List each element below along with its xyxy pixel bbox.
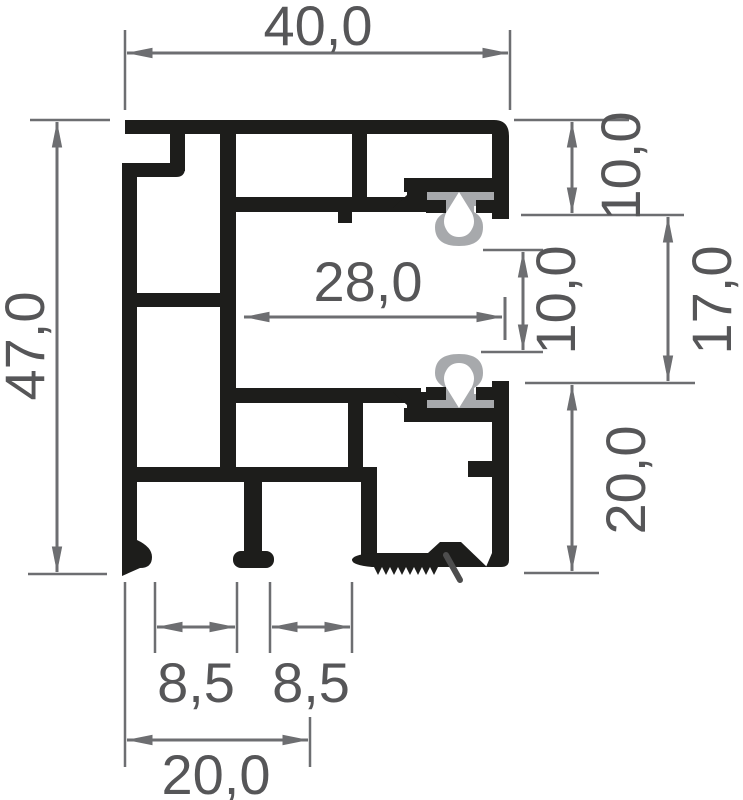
profile-drawing: 40,0 47,0 10,0 17,0 10,0 [0,0,743,800]
dim-label-top-width: 40,0 [264,0,373,57]
dim-bottom-slot-left: 8,5 [155,582,237,714]
dim-label-left-height: 47,0 [0,292,56,401]
dim-label-right-top: 10,0 [589,112,652,221]
drawing-canvas: 40,0 47,0 10,0 17,0 10,0 [0,0,743,800]
dim-bottom-slot-right: 8,5 [270,582,352,714]
dim-label-right-bottom: 20,0 [594,426,657,535]
dim-label-inner-width: 28,0 [314,250,423,313]
profile-divider-2 [352,130,367,204]
dim-label-bottom-width: 20,0 [162,743,271,800]
profile-left-wall [122,165,137,552]
profile-left-foot [122,540,152,576]
profile-right-wall-stub [468,461,492,477]
profile-shelf-nub [338,212,352,223]
dim-label-bottom-slot-left: 8,5 [157,651,235,714]
profile-center-foot [233,551,274,568]
profile-divider-1 [220,130,236,470]
profile-center-stem [244,478,262,556]
dim-left-height: 47,0 [0,120,110,574]
dim-center-gap: 10,0 [481,246,587,355]
dim-right-bottom: 20,0 [524,385,657,573]
dim-top-width: 40,0 [125,0,510,110]
profile-web-upper [348,396,363,470]
dim-label-center-gap: 10,0 [524,246,587,355]
dim-right-top: 10,0 [514,112,684,221]
dim-label-bottom-slot-right: 8,5 [272,651,350,714]
profile-shelf-lower [220,388,421,403]
profile-web-lower [361,467,377,557]
profile-left-rung [130,293,222,307]
dim-inner-width: 28,0 [244,250,505,340]
profile-serration [374,567,438,575]
dim-label-right-middle: 17,0 [680,246,743,355]
